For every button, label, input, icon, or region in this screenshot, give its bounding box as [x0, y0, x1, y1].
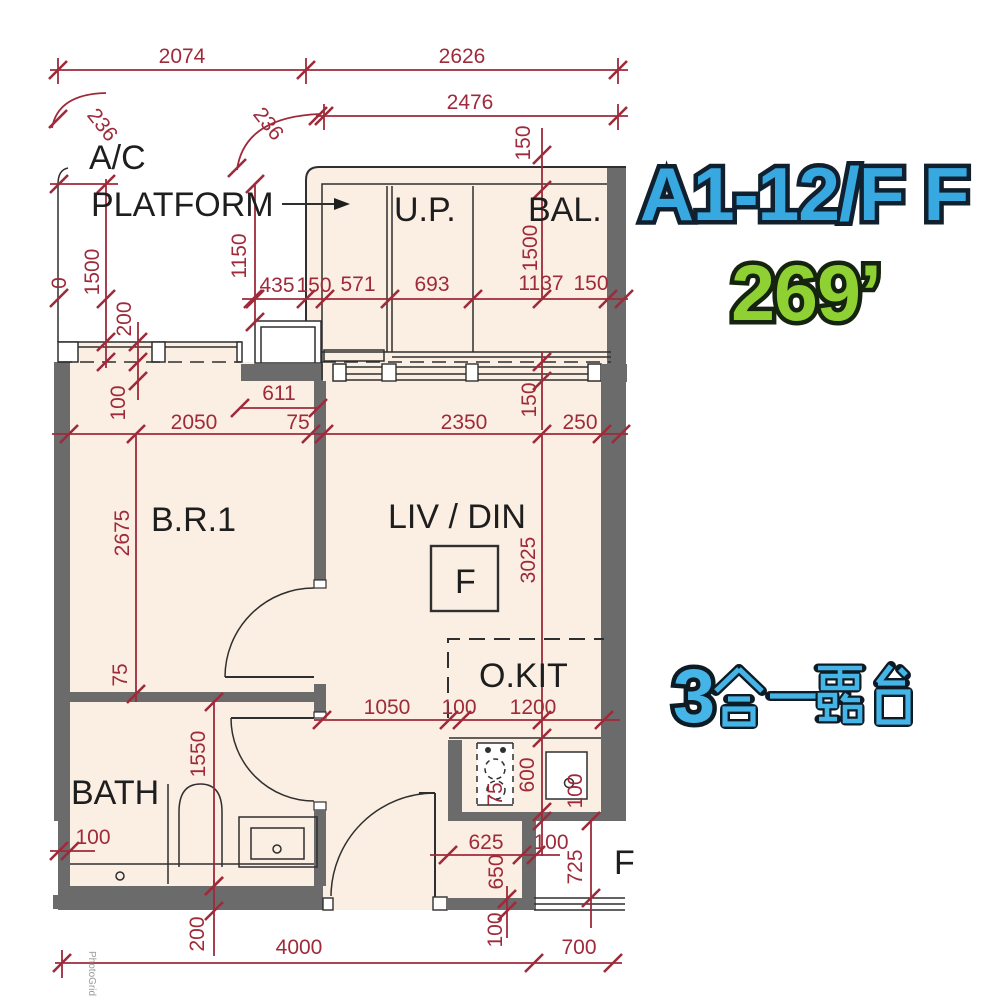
svg-text:PLATFORM: PLATFORM: [91, 186, 274, 224]
svg-text:150: 150: [512, 125, 535, 160]
svg-text:650: 650: [485, 854, 508, 889]
svg-text:150: 150: [573, 272, 608, 295]
svg-text:2626: 2626: [439, 45, 486, 68]
svg-text:1500: 1500: [81, 249, 104, 296]
svg-text:75: 75: [286, 411, 309, 434]
svg-text:100: 100: [484, 912, 507, 947]
svg-text:75: 75: [484, 782, 507, 805]
svg-text:693: 693: [414, 273, 449, 296]
svg-text:3025: 3025: [517, 537, 540, 584]
svg-text:150: 150: [296, 274, 331, 297]
svg-text:700: 700: [561, 936, 596, 959]
svg-text:200: 200: [186, 916, 209, 951]
svg-text:611: 611: [262, 382, 295, 405]
svg-text:B.R.1: B.R.1: [151, 501, 236, 539]
svg-text:4000: 4000: [276, 936, 323, 959]
svg-text:100: 100: [441, 696, 476, 719]
svg-text:1137: 1137: [518, 272, 563, 295]
svg-text:150: 150: [518, 382, 541, 417]
svg-text:A1-12/F F: A1-12/F F: [640, 152, 969, 236]
svg-text:LIV / DIN: LIV / DIN: [388, 498, 526, 536]
svg-text:435: 435: [259, 274, 294, 297]
svg-text:1150: 1150: [228, 233, 251, 278]
svg-text:F: F: [614, 844, 635, 882]
svg-text:100: 100: [107, 385, 130, 420]
svg-text:2074: 2074: [159, 45, 206, 68]
svg-text:PhotoGrid: PhotoGrid: [86, 951, 97, 996]
svg-text:2476: 2476: [447, 91, 494, 114]
svg-text:1050: 1050: [364, 696, 411, 719]
svg-text:75: 75: [109, 663, 132, 686]
svg-text:U.P.: U.P.: [394, 191, 456, 229]
svg-text:2050: 2050: [171, 411, 218, 434]
svg-text:0: 0: [48, 277, 71, 289]
svg-text:571: 571: [340, 273, 375, 296]
svg-text:O.KIT: O.KIT: [479, 657, 568, 695]
svg-text:A/C: A/C: [89, 139, 146, 177]
svg-text:3: 3: [673, 654, 715, 739]
svg-text:250: 250: [562, 411, 597, 434]
svg-text:725: 725: [564, 849, 587, 884]
svg-text:1500: 1500: [519, 225, 542, 272]
svg-text:1200: 1200: [510, 696, 557, 719]
svg-text:625: 625: [468, 831, 503, 854]
svg-text:2675: 2675: [111, 510, 134, 557]
svg-text:269’: 269’: [731, 248, 881, 337]
svg-text:100: 100: [75, 826, 110, 849]
svg-text:BAL.: BAL.: [528, 191, 602, 229]
svg-text:200: 200: [113, 301, 136, 336]
svg-text:600: 600: [516, 757, 539, 792]
svg-text:F: F: [455, 563, 476, 601]
svg-text:100: 100: [564, 773, 587, 808]
svg-text:2350: 2350: [441, 411, 488, 434]
svg-text:1550: 1550: [187, 731, 210, 778]
svg-text:BATH: BATH: [71, 774, 159, 812]
